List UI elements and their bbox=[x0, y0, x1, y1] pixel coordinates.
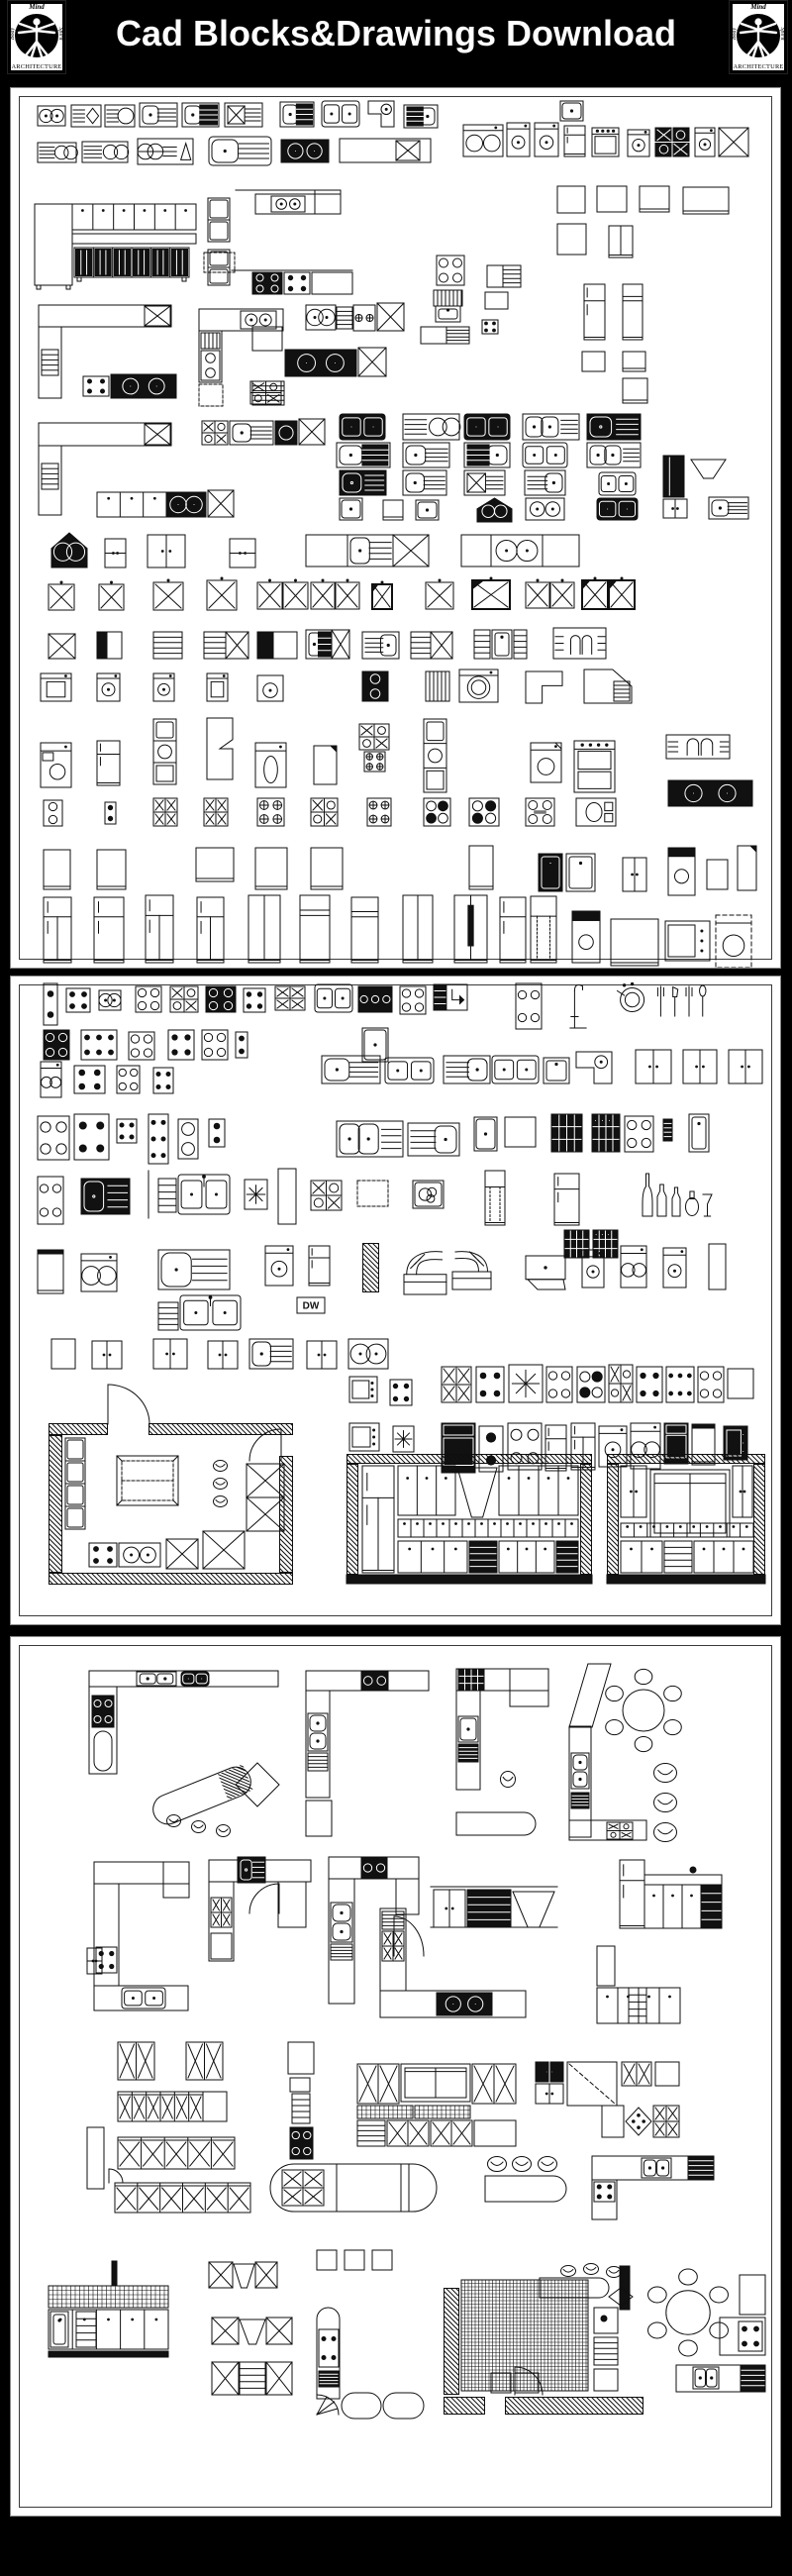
cad-block-hr bbox=[556, 1541, 578, 1573]
cad-block-rect bbox=[597, 186, 627, 212]
cad-block-wf bbox=[599, 1426, 627, 1467]
cad-block-ck bbox=[284, 272, 310, 294]
cad-block-sink bbox=[403, 443, 449, 467]
cad-block-sinkdbl bbox=[597, 498, 638, 520]
cad-block-stool bbox=[584, 2264, 599, 2275]
cad-block-dot bbox=[601, 2316, 607, 2321]
cad-block-basin2 bbox=[111, 374, 176, 398]
cad-block-wf bbox=[463, 125, 503, 156]
cad-block-rect bbox=[38, 1250, 63, 1293]
cad-block-rect bbox=[97, 632, 122, 659]
cad-block-hr bbox=[469, 1541, 497, 1573]
cad-block-rect bbox=[510, 1669, 548, 1706]
cad-block-rect bbox=[728, 1369, 753, 1398]
brand-logo-left: Mind Body Spirit ARCHITECTURE bbox=[8, 1, 65, 73]
cad-block-ck bbox=[89, 1543, 117, 1567]
cad-block-xr bbox=[396, 141, 420, 160]
cad-block-rect bbox=[720, 2318, 765, 2355]
cad-block-cab2 bbox=[663, 499, 687, 518]
cad-block-ck bbox=[739, 2321, 762, 2351]
cad-block-wf bbox=[716, 915, 751, 968]
cad-block-fr bbox=[403, 895, 433, 963]
cad-block-ck bbox=[353, 305, 375, 331]
logo-text-mind: Mind bbox=[10, 3, 63, 11]
cad-block-fr bbox=[362, 1466, 394, 1573]
cad-block-ck bbox=[516, 983, 542, 1029]
cad-block-run bbox=[694, 1541, 753, 1573]
cad-block-ckg bbox=[382, 1931, 404, 1961]
cad-block-rect bbox=[345, 2250, 364, 2270]
cad-block-basin2 bbox=[308, 1713, 328, 1751]
cad-block-hr bbox=[571, 1793, 589, 1808]
cad-block-run bbox=[621, 1541, 662, 1573]
cad-block-arc bbox=[108, 1385, 149, 1424]
cad-block-ck bbox=[362, 671, 388, 701]
cad-block-vase bbox=[686, 1191, 699, 1216]
header: Mind Body Spirit ARCHITECTURE Cad Blocks… bbox=[0, 0, 792, 87]
cad-block-cab2 bbox=[621, 1466, 646, 1517]
cad-block-arr bbox=[434, 984, 467, 1010]
cad-block-basin2 bbox=[331, 1903, 352, 1942]
cad-block-ckg bbox=[211, 1898, 232, 1927]
cad-block-xr bbox=[299, 419, 325, 445]
cad-block-wt bbox=[560, 101, 583, 121]
cad-block-rect bbox=[257, 632, 297, 659]
cad-block-xcab2 bbox=[357, 2064, 399, 2104]
cad-block-hr bbox=[614, 681, 630, 701]
cad-block-run bbox=[97, 492, 166, 517]
cad-block-fr bbox=[454, 895, 487, 963]
cad-block-dwg bbox=[551, 1114, 582, 1152]
cad-block-wf bbox=[41, 673, 71, 701]
logo-text-mind: Mind bbox=[732, 3, 785, 11]
cad-block-ck bbox=[437, 256, 464, 285]
cad-block-std bbox=[94, 1731, 112, 1771]
cad-block-xcab2 bbox=[472, 2064, 516, 2104]
cad-block-wf bbox=[695, 128, 715, 156]
cad-block-rect bbox=[312, 272, 352, 294]
cad-block-arch2 bbox=[553, 628, 606, 659]
cad-block-base bbox=[49, 2351, 168, 2357]
cad-block-basin2 bbox=[526, 498, 564, 520]
cad-block-ck bbox=[666, 1367, 694, 1402]
cad-block-ell bbox=[576, 798, 616, 826]
cad-block-run bbox=[115, 2183, 250, 2213]
cad-block-fr bbox=[500, 897, 526, 963]
cad-block-bd bbox=[544, 1058, 569, 1083]
cad-block-fr bbox=[623, 284, 643, 340]
cad-block-rect bbox=[655, 2062, 679, 2086]
cad-block-rect bbox=[163, 1862, 189, 1898]
cad-block-rect bbox=[199, 331, 222, 382]
cad-block-sinkdbl bbox=[181, 1672, 209, 1686]
cad-block-basin2 bbox=[348, 1339, 388, 1369]
cad-block-run bbox=[597, 1988, 680, 2023]
cad-block-fr bbox=[197, 897, 224, 963]
cad-block-wh bbox=[37, 1573, 301, 1585]
cad-block-hr bbox=[76, 2312, 96, 2347]
cad-block-pent bbox=[51, 533, 87, 567]
cad-block-fr bbox=[248, 895, 280, 963]
cad-block-fr bbox=[584, 284, 605, 340]
cad-block-hood bbox=[234, 2264, 254, 2288]
cad-block-ck bbox=[105, 802, 116, 824]
cad-block-hr bbox=[357, 2120, 385, 2146]
cad-block-std bbox=[401, 2164, 437, 2212]
cad-block-stool bbox=[192, 1821, 206, 1833]
cad-block-dot bbox=[690, 1867, 696, 1873]
cad-block-basin2 bbox=[137, 1672, 176, 1686]
cad-block-xr bbox=[377, 303, 404, 331]
cad-block-sinkdbl bbox=[315, 984, 352, 1012]
cad-block-run bbox=[208, 198, 230, 242]
cad-block-rect bbox=[543, 535, 579, 567]
cad-block-ck bbox=[83, 376, 109, 396]
vitruvian-man-icon bbox=[13, 12, 60, 59]
cad-block-run bbox=[499, 1466, 578, 1515]
cad-block-mic bbox=[349, 1377, 377, 1402]
cad-block-ckx bbox=[170, 986, 198, 1012]
cad-drawing-canvas-3 bbox=[11, 1637, 780, 2516]
cad-block-sink bbox=[140, 103, 177, 127]
cad-block-x1 bbox=[99, 581, 124, 610]
cad-block-rect bbox=[623, 352, 645, 371]
cad-block-sink bbox=[587, 414, 641, 440]
cad-block-basin2 bbox=[306, 305, 336, 330]
cad-block-bd bbox=[492, 630, 512, 659]
cad-block-hood bbox=[691, 460, 726, 478]
cad-block-x1 bbox=[550, 579, 574, 608]
cad-block-sink bbox=[709, 497, 748, 519]
cad-block-fr bbox=[351, 897, 378, 963]
cad-block-sinkx bbox=[225, 103, 262, 127]
cad-block-ck bbox=[364, 752, 385, 772]
cad-block-rect bbox=[597, 1946, 615, 1986]
cad-block-cab2 bbox=[536, 2062, 563, 2082]
cad-block-ck bbox=[476, 1367, 504, 1402]
cad-block-std bbox=[342, 2393, 381, 2419]
cad-block-ck bbox=[74, 1114, 109, 1160]
cad-block-wf bbox=[257, 675, 283, 701]
cad-block-fan bbox=[317, 2395, 339, 2415]
cad-block-poly bbox=[584, 670, 632, 703]
cad-block-rect bbox=[421, 327, 446, 344]
cad-block-rect bbox=[505, 1117, 536, 1147]
cad-block-hr bbox=[663, 1119, 672, 1141]
cad-block-sinkdbl bbox=[340, 414, 385, 440]
cad-block-x1 bbox=[609, 577, 635, 609]
cad-block-ck bbox=[257, 798, 284, 826]
cad-block-rect bbox=[199, 384, 223, 406]
cad-block-cab2 bbox=[153, 1339, 187, 1369]
cad-block-basin2 bbox=[642, 2158, 671, 2178]
cad-block-sinkdbl bbox=[523, 443, 567, 467]
cad-block-ckx bbox=[359, 724, 389, 750]
cad-block-cab2 bbox=[307, 1341, 337, 1369]
cad-block-sinkx bbox=[464, 470, 505, 495]
cad-block-bd bbox=[436, 306, 460, 322]
cad-block-hr bbox=[629, 1988, 646, 2023]
cad-block-rect bbox=[594, 2369, 618, 2391]
cad-block-stool bbox=[217, 1825, 231, 1837]
cad-block-hr bbox=[503, 265, 521, 287]
cad-block-ckm bbox=[469, 798, 499, 826]
cad-block-rect bbox=[461, 535, 491, 567]
cad-block-sink bbox=[587, 443, 641, 467]
cad-block-ckg bbox=[153, 798, 177, 826]
cad-block-std bbox=[540, 2278, 609, 2298]
cad-block-basin2 bbox=[285, 350, 356, 376]
cad-block-fr bbox=[545, 1425, 566, 1471]
cad-block-ck bbox=[546, 1367, 572, 1402]
cad-block-rect bbox=[203, 2092, 227, 2121]
cad-block-ck bbox=[508, 1423, 542, 1470]
cad-block-std bbox=[485, 2176, 566, 2202]
cad-block-fr bbox=[554, 1174, 579, 1225]
cad-sheet-1 bbox=[10, 87, 781, 969]
cad-block-ck bbox=[38, 1116, 69, 1160]
cad-block-wt bbox=[474, 1117, 497, 1151]
cad-block-rect bbox=[94, 1986, 188, 2010]
cad-block-base bbox=[607, 1575, 765, 1584]
cad-block-wf bbox=[41, 1062, 61, 1097]
cad-block-run bbox=[118, 2137, 235, 2169]
cad-block-xr bbox=[247, 1464, 284, 1497]
cad-block-ckx bbox=[202, 421, 228, 445]
cad-block-ck bbox=[81, 1030, 117, 1060]
cad-block-poly bbox=[569, 1664, 611, 1727]
cad-block-ckx bbox=[311, 798, 338, 826]
cad-block-ck bbox=[74, 1066, 105, 1093]
cad-block-wf bbox=[81, 1254, 117, 1291]
cad-block-cab2 bbox=[729, 1050, 762, 1083]
cad-block-stool bbox=[214, 1461, 228, 1472]
cad-block-wh bbox=[643, 1464, 780, 1575]
cad-block-cab2 bbox=[92, 1341, 122, 1369]
cad-block-x1 bbox=[153, 579, 183, 610]
cad-block-run bbox=[74, 248, 189, 281]
cad-block-stripes bbox=[403, 414, 460, 440]
cad-block-ht bbox=[357, 2106, 413, 2118]
cad-block-arch2 bbox=[666, 735, 730, 759]
cad-block-x1 bbox=[472, 577, 510, 609]
cad-block-xr bbox=[226, 632, 248, 659]
cad-block-txt: DW bbox=[297, 1297, 325, 1313]
cad-block-arc bbox=[109, 2169, 123, 2183]
cad-block-hr bbox=[458, 1744, 478, 1762]
cad-block-poly bbox=[207, 718, 233, 779]
cad-block-run bbox=[499, 1541, 554, 1573]
cad-block-hr bbox=[688, 2156, 714, 2180]
cad-block-vr bbox=[201, 333, 220, 349]
cad-block-ck2h bbox=[138, 139, 193, 164]
cad-block-ckx bbox=[609, 1365, 633, 1402]
cad-block-ck bbox=[153, 1068, 173, 1093]
page-title: Cad Blocks&Drawings Download bbox=[69, 8, 723, 59]
cad-block-xcab2 bbox=[622, 2062, 651, 2086]
cad-block-wf bbox=[97, 673, 120, 701]
cad-block-cab2 bbox=[105, 539, 126, 567]
cad-block-hoodside bbox=[404, 1252, 446, 1294]
cad-block-rect bbox=[44, 850, 70, 889]
cad-block-rect bbox=[211, 1933, 232, 1959]
cad-block-stool bbox=[654, 1794, 677, 1812]
cad-block-ck bbox=[92, 1696, 114, 1727]
cad-block-wf bbox=[255, 743, 286, 787]
cad-block-rect bbox=[97, 850, 126, 889]
cad-block-star bbox=[245, 1180, 267, 1209]
cad-block-ckg bbox=[442, 1367, 471, 1402]
cad-block-ck bbox=[202, 1030, 228, 1060]
cad-block-ck bbox=[148, 1114, 168, 1164]
cad-block-ht bbox=[415, 2106, 470, 2118]
cad-block-ck bbox=[482, 320, 498, 334]
cad-block-bd bbox=[566, 854, 595, 891]
cad-block-sink bbox=[408, 1123, 459, 1156]
cad-block-rect bbox=[94, 1862, 189, 1884]
cad-block-ck bbox=[625, 1116, 653, 1152]
cad-block-rect bbox=[396, 1879, 419, 1914]
cad-block-wf bbox=[265, 1246, 293, 1286]
cad-block-ht bbox=[49, 2286, 168, 2308]
cad-block-wt bbox=[416, 500, 439, 520]
cad-block-fr bbox=[146, 895, 173, 963]
cad-block-fr bbox=[97, 741, 120, 785]
cad-block-xr bbox=[209, 2262, 233, 2288]
cad-block-rect bbox=[340, 139, 431, 162]
cad-block-sinkdbl bbox=[322, 101, 359, 127]
cad-block-ck bbox=[390, 1380, 412, 1405]
cad-block-stool bbox=[654, 1823, 677, 1842]
cad-block-sink bbox=[464, 443, 510, 467]
cad-block-bot bbox=[657, 1185, 666, 1216]
cad-block-sink bbox=[337, 1121, 403, 1157]
cad-block-blender bbox=[618, 982, 644, 1011]
cad-block-ck bbox=[358, 986, 392, 1012]
cad-block-rect bbox=[738, 846, 756, 890]
cad-block-t6 bbox=[606, 1669, 682, 1751]
cad-block-hr bbox=[308, 1753, 328, 1771]
cad-block-rect bbox=[623, 378, 647, 403]
cad-block-basin2 bbox=[38, 106, 65, 126]
cad-block-poly bbox=[526, 671, 562, 703]
promo-graphic: Mind Body Spirit ARCHITECTURE Cad Blocks… bbox=[0, 0, 792, 2576]
cad-block-base bbox=[346, 1575, 592, 1584]
cad-block-hr bbox=[153, 632, 182, 659]
cad-block-hr bbox=[331, 1944, 352, 1960]
cad-block-basin2 bbox=[166, 492, 206, 517]
cad-block-hr bbox=[701, 1885, 722, 1928]
cad-block-run bbox=[65, 1438, 85, 1529]
cad-block-sink bbox=[158, 1250, 230, 1289]
cad-block-rect bbox=[306, 1801, 332, 1836]
cad-block-hr bbox=[446, 327, 469, 344]
cad-block-wt bbox=[340, 498, 362, 520]
cad-block-hr bbox=[514, 630, 527, 659]
cad-block-stool bbox=[214, 1479, 228, 1490]
cad-block-ck bbox=[38, 1177, 63, 1224]
cad-block-fr bbox=[620, 1860, 644, 1928]
cad-block-xr bbox=[358, 348, 386, 376]
cad-block-std bbox=[383, 2393, 424, 2419]
brand-logo-right: Mind Body Spirit ARCHITECTURE bbox=[730, 1, 787, 73]
cad-block-ck bbox=[66, 988, 90, 1012]
cad-block-sinkdbl bbox=[464, 414, 510, 440]
cad-block-sinkdbl bbox=[122, 1988, 165, 2009]
cad-block-xr bbox=[431, 632, 452, 659]
cad-block-star bbox=[509, 1365, 543, 1402]
cad-block-ckg bbox=[275, 986, 305, 1010]
cad-block-ckx bbox=[607, 1822, 633, 1839]
cad-block-basin2 bbox=[271, 196, 305, 212]
cad-block-ck bbox=[319, 2329, 339, 2367]
cad-block-x1 bbox=[372, 581, 392, 609]
cad-block-ck bbox=[400, 986, 426, 1014]
cad-block-ov bbox=[592, 128, 619, 156]
cad-block-x1 bbox=[336, 579, 359, 609]
cad-block-rect bbox=[255, 848, 287, 889]
cad-block-ckg bbox=[653, 2106, 679, 2137]
logo-text-architecture: ARCHITECTURE bbox=[732, 63, 785, 70]
cad-block-rect bbox=[94, 1884, 119, 1986]
cad-block-rect bbox=[602, 2106, 624, 2137]
cad-block-hood bbox=[513, 1892, 554, 1927]
cad-block-cab2 bbox=[230, 539, 255, 567]
cad-block-rect bbox=[196, 848, 234, 881]
cad-block-stool bbox=[539, 2157, 557, 2172]
logo-text-architecture: ARCHITECTURE bbox=[10, 63, 63, 70]
cad-block-sink bbox=[347, 535, 393, 567]
cad-block-basin2 bbox=[437, 1993, 492, 2015]
cad-block-sinkdbl bbox=[492, 1056, 539, 1083]
cad-block-rect bbox=[39, 305, 171, 327]
cad-block-t6 bbox=[648, 2269, 729, 2356]
cad-block-sink bbox=[340, 470, 386, 495]
cad-block-rect bbox=[290, 2078, 310, 2092]
cad-block-bd bbox=[689, 1114, 709, 1152]
cad-block-sink bbox=[444, 1056, 490, 1083]
cad-block-mic bbox=[349, 1423, 379, 1451]
cad-block-rect bbox=[314, 746, 337, 784]
cad-block-ck bbox=[367, 798, 391, 826]
cad-block-star bbox=[393, 1426, 414, 1452]
cad-block-fsq bbox=[401, 2064, 470, 2102]
cad-block-rect bbox=[51, 1339, 75, 1369]
cad-block-xcab2 bbox=[431, 2120, 472, 2146]
cad-block-sink bbox=[249, 1339, 293, 1369]
cad-block-wh bbox=[162, 1456, 408, 1573]
cad-block-xr bbox=[166, 1539, 198, 1569]
cad-block-ckm bbox=[424, 798, 450, 826]
cad-block-wf bbox=[668, 848, 695, 895]
cad-block-hood bbox=[240, 2319, 265, 2344]
cad-block-rect bbox=[557, 224, 586, 255]
cad-block-cab2 bbox=[636, 1050, 671, 1083]
cad-block-hr bbox=[292, 2094, 310, 2123]
cad-block-run bbox=[398, 1519, 578, 1537]
cad-block-wt bbox=[458, 1716, 478, 1742]
cad-block-sink bbox=[230, 421, 273, 445]
cad-block-ck bbox=[136, 986, 161, 1012]
cad-block-arc bbox=[249, 1884, 279, 1913]
cad-block-fsq bbox=[650, 1470, 730, 1537]
cad-block-rect bbox=[278, 1169, 296, 1224]
cad-block-basin2 bbox=[693, 2367, 719, 2389]
cad-block-xr bbox=[332, 630, 349, 659]
cad-block-fr bbox=[564, 126, 585, 156]
cad-block-sinkdbl bbox=[385, 1058, 434, 1083]
cad-block-sinkdbl bbox=[180, 1295, 241, 1330]
